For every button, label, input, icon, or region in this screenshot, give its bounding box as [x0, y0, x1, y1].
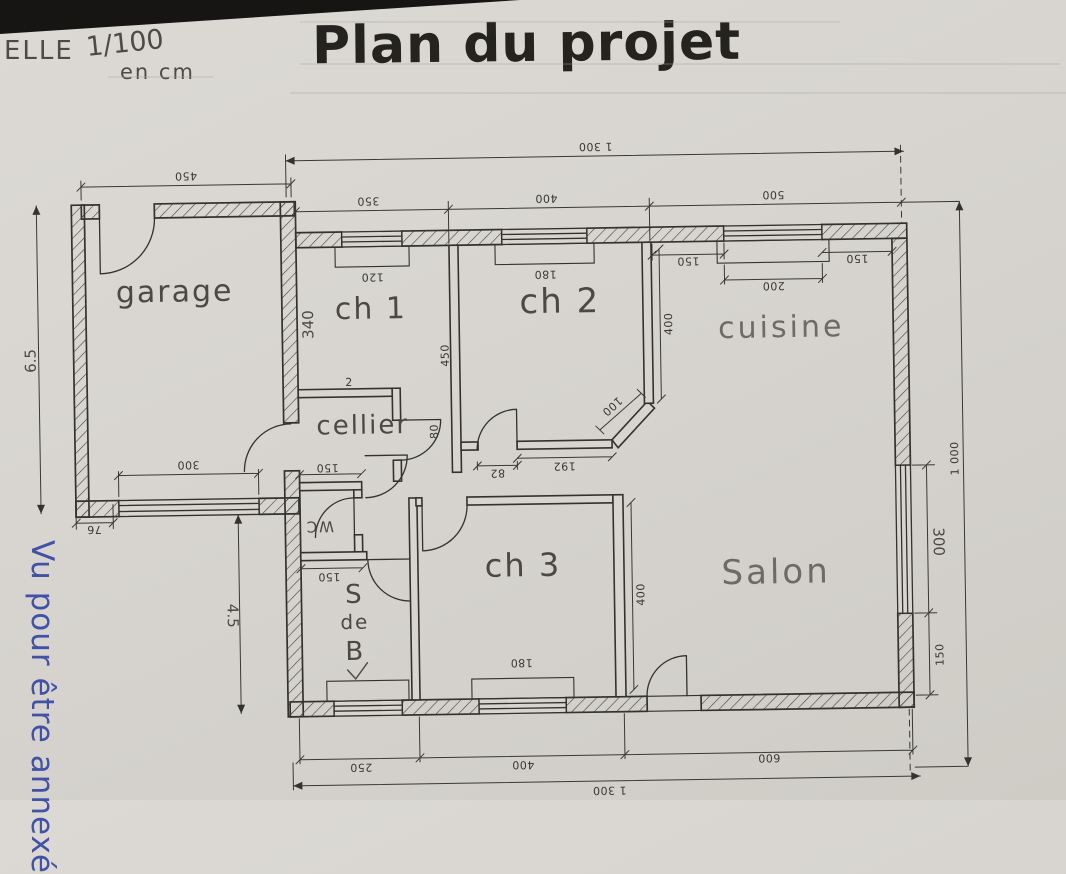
dim-door-80: 80 — [428, 424, 441, 439]
room-label-salon: Salon — [721, 551, 831, 593]
room-label-ch2: ch 2 — [519, 281, 600, 322]
room-label-cellier: cellier — [316, 410, 409, 441]
dim-garage-window: 300 — [177, 458, 200, 471]
dim-garage-width: 450 — [174, 169, 197, 182]
ch2-door — [477, 409, 518, 450]
room-label-sdb-s: S — [345, 580, 364, 610]
dim-hall-wall: 192 — [553, 459, 576, 472]
dim-ch3-window: 180 — [510, 656, 533, 669]
windows — [115, 223, 915, 719]
photo-background-corner — [0, 0, 520, 34]
room-label-sdb-b: B — [345, 637, 365, 667]
dim-cellier-width: 150 — [316, 461, 339, 474]
dim-top-ch2: 400 — [535, 192, 558, 205]
dim-bottom-salon: 600 — [758, 751, 781, 764]
dim-garage-pier: 76 — [87, 523, 102, 536]
dim-salon-window: 300 — [929, 527, 947, 556]
dim-ch3-wall: 400 — [634, 583, 647, 606]
garage-house-door — [244, 424, 292, 472]
dim-ch2-window: 180 — [534, 268, 557, 281]
dim-right-total: 1 000 — [948, 441, 962, 475]
room-label-wc: WC — [305, 517, 335, 535]
room-label-garage: garage — [116, 274, 234, 311]
sdb-door — [368, 559, 411, 602]
room-label-cuisine: cuisine — [718, 309, 845, 346]
dim-entry-splay: 100 — [599, 394, 624, 419]
room-label-ch1: ch 1 — [335, 291, 408, 327]
room-label-ch3: ch 3 — [484, 546, 561, 585]
dim-ch1-window: 120 — [361, 270, 384, 283]
dim-cuisine-window: 200 — [762, 279, 785, 292]
dim-bottom-sdb: 250 — [350, 761, 373, 774]
dim-partition-450: 450 — [438, 344, 451, 367]
dim-bottom-total: 1 300 — [592, 784, 626, 798]
plan-drawing: 1 300 350 400 500 450 6.5 300 76 4.5 120… — [18, 134, 972, 800]
dim-wc-width: 150 — [318, 570, 341, 583]
dim-ch1-depth: 340 — [299, 310, 317, 339]
garage-door — [99, 218, 155, 274]
dim-door-width: 82 — [490, 466, 505, 479]
dim-mark-2: 2 — [345, 376, 353, 389]
dim-top-ch1: 350 — [357, 194, 380, 207]
dim-bottom-ch3: 400 — [512, 758, 535, 771]
ch3-door — [422, 505, 468, 551]
dim-garage-height: 6.5 — [22, 349, 40, 373]
exterior-walls — [71, 192, 914, 720]
salon-entry-door — [646, 656, 687, 697]
dim-cuisine-gap-left: 150 — [677, 254, 700, 267]
dim-top-cuisine: 500 — [762, 188, 785, 201]
floor-plan: 1 300 350 400 500 450 6.5 300 76 4.5 120… — [0, 0, 1066, 800]
dim-cuisine-gap-right: 150 — [846, 252, 869, 265]
room-label-sdb-de: de — [340, 610, 369, 634]
paper-ruled-lines — [108, 22, 1066, 93]
dim-yard-height: 4.5 — [224, 604, 242, 628]
dim-salon-pier: 150 — [933, 643, 946, 666]
scanned-floor-plan-photo: { "title": "Plan du projet", "scale_note… — [0, 0, 1066, 800]
dim-cuisine-wall: 400 — [662, 313, 675, 336]
dim-top-total: 1 300 — [578, 140, 612, 154]
